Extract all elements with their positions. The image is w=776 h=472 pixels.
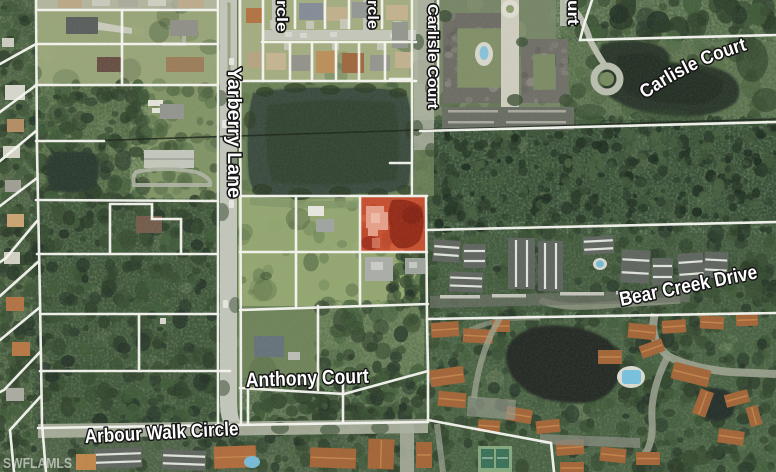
svg-text:Anthony Court: Anthony Court (245, 365, 369, 392)
svg-text:rcle: rcle (364, 0, 381, 29)
svg-text:Carlisle Court: Carlisle Court (424, 4, 441, 109)
svg-text:SWFLAMLS: SWFLAMLS (3, 456, 72, 472)
svg-text:rcle: rcle (273, 0, 290, 32)
svg-text:Yarberry Lane: Yarberry Lane (223, 67, 244, 198)
svg-text:urt: urt (564, 0, 581, 25)
